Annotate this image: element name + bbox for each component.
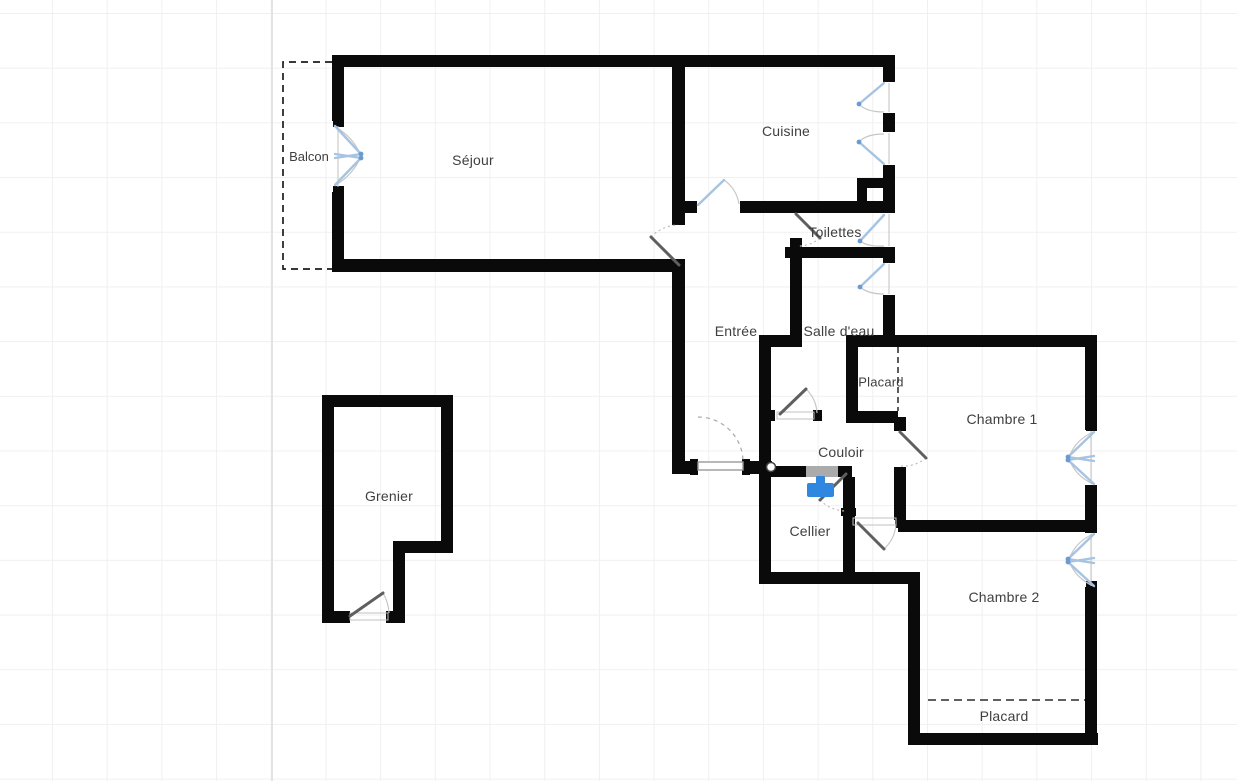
room-label-grenier[interactable]: Grenier bbox=[365, 488, 413, 504]
room-label-cuisine[interactable]: Cuisine bbox=[762, 123, 810, 139]
room-label-couloir[interactable]: Couloir bbox=[818, 444, 864, 460]
door-entree-entry[interactable] bbox=[698, 417, 743, 470]
window-toilettes[interactable] bbox=[858, 214, 889, 246]
room-label-balcon[interactable]: Balcon bbox=[287, 149, 331, 166]
door-grenier[interactable] bbox=[350, 593, 389, 620]
room-label-entree[interactable]: Entrée bbox=[715, 323, 757, 339]
wall-joint-marker bbox=[767, 463, 776, 472]
floor-plan-canvas: Balcon Séjour Cuisine Toilettes Entrée S… bbox=[0, 0, 1237, 781]
window-chambre2[interactable] bbox=[1066, 534, 1094, 586]
walls bbox=[322, 55, 1098, 745]
door-chambre2[interactable] bbox=[853, 518, 896, 549]
room-label-toilettes[interactable]: Toilettes bbox=[808, 224, 861, 240]
door-salle-deau[interactable] bbox=[777, 389, 817, 419]
room-label-cellier[interactable]: Cellier bbox=[789, 523, 830, 539]
window-salle-deau[interactable] bbox=[858, 264, 889, 294]
room-label-sejour[interactable]: Séjour bbox=[452, 152, 494, 168]
room-label-salle-deau[interactable]: Salle d'eau bbox=[803, 323, 874, 339]
window-cuisine-2[interactable] bbox=[857, 133, 889, 164]
window-chambre1[interactable] bbox=[1066, 431, 1094, 484]
room-label-placard1[interactable]: Placard bbox=[858, 375, 903, 390]
room-label-chambre2[interactable]: Chambre 2 bbox=[968, 589, 1039, 605]
floor-plan-drawing bbox=[0, 0, 1237, 781]
door-chambre1[interactable] bbox=[900, 432, 926, 466]
wall-opening bbox=[806, 466, 838, 477]
door-cuisine[interactable] bbox=[698, 180, 739, 205]
window-sejour[interactable] bbox=[335, 126, 363, 187]
room-label-chambre1[interactable]: Chambre 1 bbox=[966, 411, 1037, 427]
room-label-placard2[interactable]: Placard bbox=[980, 708, 1029, 724]
water-heater-icon[interactable] bbox=[807, 476, 834, 497]
window-cuisine-1[interactable] bbox=[857, 83, 889, 112]
